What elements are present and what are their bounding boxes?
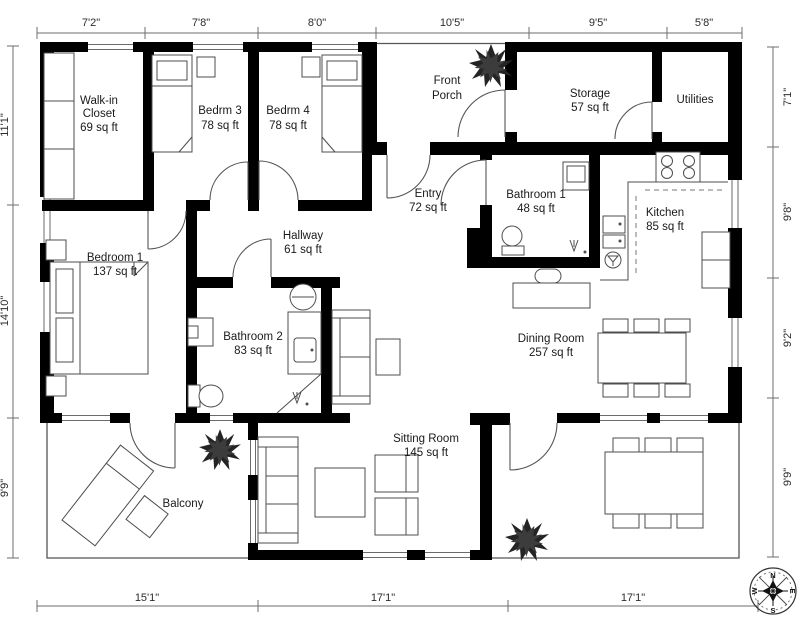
label-entry: Entry 72 sq ft (409, 188, 448, 214)
svg-text:145 sq ft: 145 sq ft (404, 447, 449, 459)
desk-chair (535, 269, 561, 283)
plant-balcony (199, 429, 241, 470)
dim-right-1: 9'8" (782, 203, 794, 221)
dim-bottom-2: 17'1" (621, 592, 645, 604)
label-sitting-room: Sitting Room 145 sq ft (393, 433, 459, 459)
dim-left-2: 9'9" (0, 479, 11, 497)
window (425, 550, 470, 560)
door-patio (510, 423, 557, 470)
label-storage: Storage 57 sq ft (570, 88, 610, 114)
bed-bedrm3 (152, 55, 215, 152)
fridge (702, 232, 730, 260)
svg-text:Kitchen: Kitchen (646, 207, 684, 219)
label-utilities: Utilities (676, 94, 713, 106)
label-dining-room: Dining Room 257 sq ft (518, 333, 584, 359)
window (600, 413, 647, 423)
window (248, 440, 258, 475)
shower-icon (570, 240, 578, 251)
dim-right-0: 7'1" (782, 88, 794, 106)
door-bedrm3 (210, 162, 248, 200)
label-hallway: Hallway 61 sq ft (283, 230, 324, 256)
window (660, 413, 708, 423)
chair (665, 319, 690, 332)
door-bedroom1 (148, 211, 186, 249)
label-bedrm3: Bedrm 3 78 sq ft (198, 105, 241, 132)
armchair (375, 498, 418, 535)
compass-rose: N E S W (750, 568, 797, 615)
shower-screen (277, 374, 321, 413)
nightstand (302, 57, 320, 77)
svg-text:257 sq ft: 257 sq ft (529, 347, 574, 359)
toilet-tank (188, 385, 200, 407)
chair (613, 438, 639, 452)
patio-dining-set (605, 438, 703, 528)
floor-plan-svg: Walk-in Closet 69 sq ft Bedrm 3 78 sq ft… (0, 0, 800, 619)
dim-top-4: 9'5" (589, 17, 607, 29)
label-front-porch: Front Porch (432, 75, 462, 102)
svg-text:61 sq ft: 61 sq ft (284, 244, 323, 256)
svg-text:Bedrm 3: Bedrm 3 (198, 105, 241, 117)
dim-top-2: 8'0" (308, 17, 326, 29)
svg-text:Sitting Room: Sitting Room (393, 433, 459, 445)
svg-text:Bedrm 4: Bedrm 4 (266, 105, 310, 117)
coffee-table (315, 468, 365, 517)
toilet-tank (502, 246, 524, 255)
dim-left-1: 14'10" (0, 296, 11, 327)
svg-text:Balcony: Balcony (163, 498, 204, 510)
chair (645, 514, 671, 528)
plant-patio (505, 518, 549, 561)
svg-text:Porch: Porch (432, 90, 462, 102)
kitchen-counter (600, 152, 730, 288)
label-bathroom1: Bathroom 1 48 sq ft (506, 189, 565, 215)
svg-text:78 sq ft: 78 sq ft (269, 120, 308, 132)
svg-text:137 sq ft: 137 sq ft (93, 266, 138, 278)
door-utilities (615, 102, 652, 139)
window (248, 500, 258, 543)
floor-plan: Walk-in Closet 69 sq ft Bedrm 3 78 sq ft… (0, 0, 800, 619)
svg-text:Bathroom 2: Bathroom 2 (223, 331, 282, 343)
dim-right-3: 9'9" (782, 468, 794, 486)
door-bedrm4 (259, 161, 298, 200)
dimension-left: 11'1" 14'10" 9'9" (0, 46, 19, 558)
svg-text:78 sq ft: 78 sq ft (201, 120, 240, 132)
nightstand (46, 240, 66, 260)
dim-top-0: 7'2" (82, 17, 100, 29)
label-kitchen: Kitchen 85 sq ft (646, 207, 685, 233)
chair (603, 384, 628, 397)
svg-text:Closet: Closet (83, 108, 116, 120)
svg-text:Walk-in: Walk-in (80, 95, 118, 107)
dimension-bottom: 15'1" 17'1" 17'1" (37, 592, 758, 612)
chair (677, 438, 703, 452)
sofa (258, 437, 298, 543)
chair (645, 438, 671, 452)
side-table (376, 339, 400, 375)
desk (513, 269, 590, 308)
nightstand (46, 376, 66, 396)
svg-text:83 sq ft: 83 sq ft (234, 345, 273, 357)
bed-bedrm4 (302, 55, 362, 152)
svg-text:Front: Front (434, 75, 462, 87)
window (62, 413, 110, 423)
dimension-top: 7'2" 7'8" 8'0" 10'5" 9'5" 5'8" (37, 17, 742, 39)
dining-set (598, 319, 690, 397)
patio-table (605, 452, 703, 514)
compass-w: W (750, 587, 759, 595)
svg-text:69 sq ft: 69 sq ft (80, 122, 119, 134)
chair (677, 514, 703, 528)
toilet-bowl (199, 385, 223, 407)
compass-n: N (770, 571, 775, 580)
compass-e: E (788, 588, 797, 593)
dim-bottom-1: 17'1" (371, 592, 395, 604)
compass-arrow-north (769, 580, 777, 588)
svg-text:85 sq ft: 85 sq ft (646, 221, 685, 233)
svg-text:Entry: Entry (415, 188, 442, 200)
svg-text:Dining Room: Dining Room (518, 333, 584, 345)
dim-right-2: 9'2" (782, 329, 794, 347)
label-bathroom2: Bathroom 2 83 sq ft (223, 331, 282, 357)
window (88, 42, 133, 52)
chair (634, 319, 659, 332)
svg-text:Utilities: Utilities (676, 94, 713, 106)
window (728, 318, 742, 367)
compass-s: S (770, 606, 775, 615)
label-balcony: Balcony (163, 498, 204, 510)
armchair (375, 455, 418, 492)
compass-arrow-south (769, 594, 777, 602)
compass-arrow-west (762, 587, 770, 595)
door-porch-storage (458, 90, 505, 137)
window (312, 42, 358, 52)
label-walk-in-closet: Walk-in Closet 69 sq ft (80, 95, 119, 134)
window (210, 413, 233, 423)
svg-text:72 sq ft: 72 sq ft (409, 202, 448, 214)
svg-text:Storage: Storage (570, 88, 610, 100)
dim-bottom-0: 15'1" (135, 592, 159, 604)
chair (603, 319, 628, 332)
window (728, 180, 742, 228)
nightstand (197, 57, 215, 77)
kitchen-sink (603, 216, 625, 233)
svg-text:48 sq ft: 48 sq ft (517, 203, 556, 215)
chair (665, 384, 690, 397)
door-bathroom1 (441, 160, 486, 205)
dim-top-1: 7'8" (192, 17, 210, 29)
svg-text:57 sq ft: 57 sq ft (571, 102, 610, 114)
loveseat (332, 310, 400, 404)
dim-top-3: 10'5" (440, 17, 464, 29)
chair (613, 514, 639, 528)
closet-shelves (44, 53, 74, 199)
toilet-bowl (502, 226, 522, 246)
svg-text:Bathroom 1: Bathroom 1 (506, 189, 565, 201)
dining-table (598, 333, 686, 383)
window (363, 550, 407, 560)
dim-left-0: 11'1" (0, 113, 11, 137)
dimension-right: 7'1" 9'8" 9'2" 9'9" (767, 47, 794, 557)
label-bedrm4: Bedrm 4 78 sq ft (266, 105, 310, 132)
compass-arrow-east (776, 587, 784, 595)
chair (634, 384, 659, 397)
stove (656, 152, 700, 182)
dim-top-5: 5'8" (695, 17, 713, 29)
window (193, 42, 243, 52)
door-bathroom2 (233, 239, 271, 277)
svg-text:Hallway: Hallway (283, 230, 324, 242)
svg-text:Bedroom 1: Bedroom 1 (87, 252, 143, 264)
cabinet (702, 260, 730, 288)
